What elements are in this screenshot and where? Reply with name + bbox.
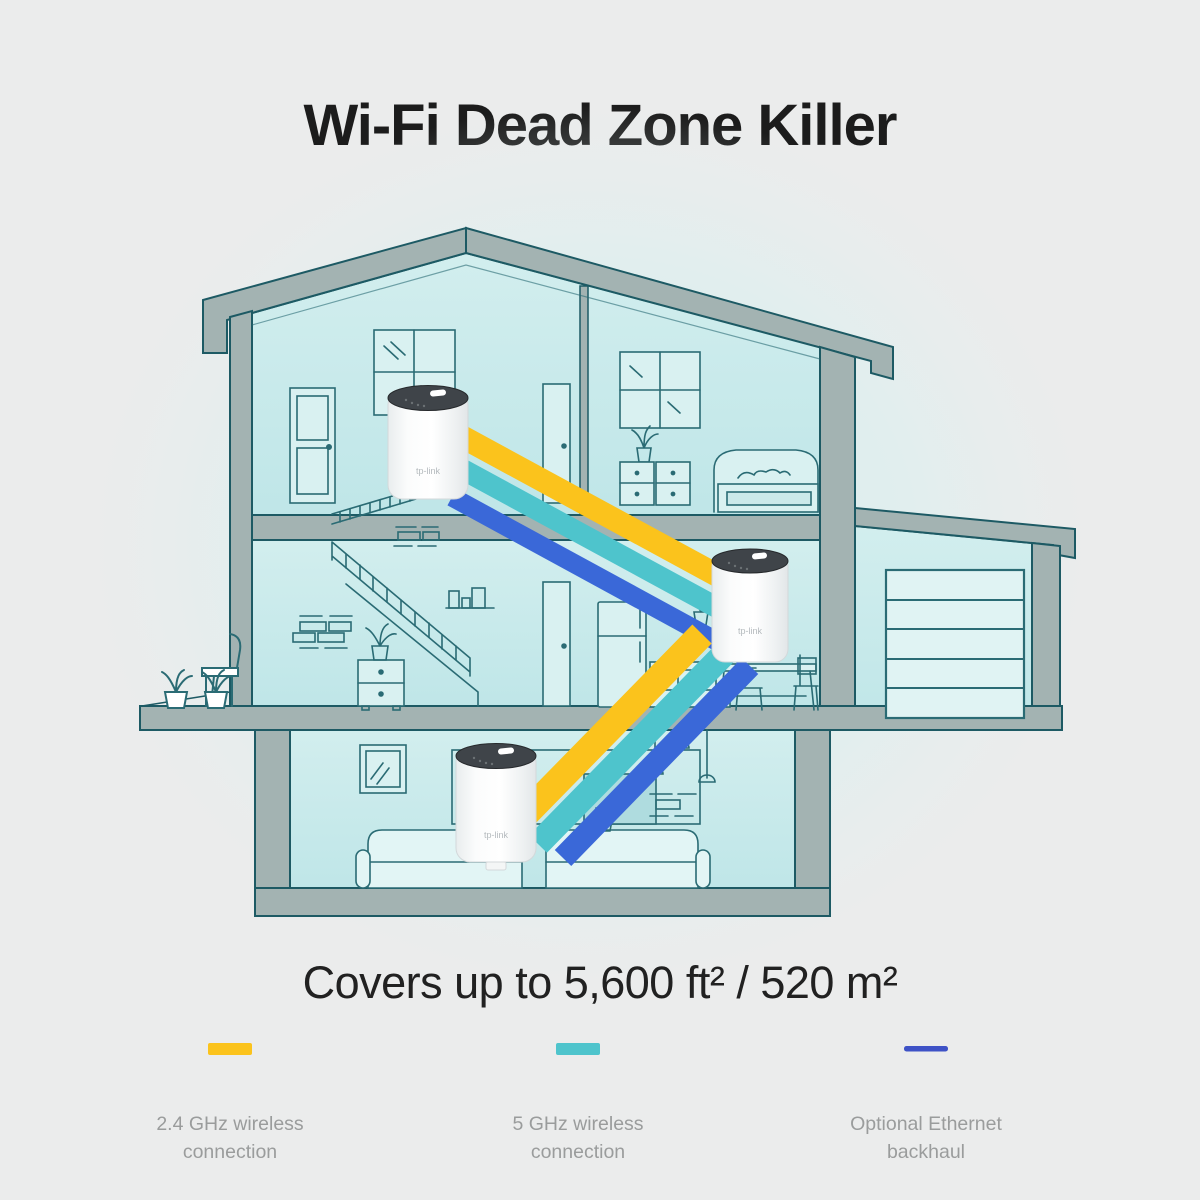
legend-swatch-5ghz xyxy=(555,1042,601,1056)
legend-swatch-24ghz xyxy=(207,1042,253,1056)
garage-door xyxy=(886,570,1024,718)
legend-label: 2.4 GHz wireless connection xyxy=(156,1110,303,1166)
legend-item-5ghz: 5 GHz wireless connection xyxy=(438,1042,718,1166)
legend-swatch-ethernet xyxy=(903,1042,949,1056)
legend-label: Optional Ethernet backhaul xyxy=(850,1110,1002,1166)
page: Wi-Fi Dead Zone Killer xyxy=(0,0,1200,1200)
wall-mirror xyxy=(360,745,406,793)
house-illustration: tp-link tp-link tp-link xyxy=(0,0,1200,1200)
tp-link-logo: tp-link xyxy=(738,626,763,636)
potted-plant-icon xyxy=(205,692,227,708)
garage xyxy=(886,570,1024,718)
deco-unit-attic: tp-link xyxy=(388,386,468,500)
coverage-text: Covers up to 5,600 ft² / 520 m² xyxy=(0,957,1200,1009)
legend-item-24ghz: 2.4 GHz wireless connection xyxy=(90,1042,370,1166)
potted-plant-icon xyxy=(165,692,187,708)
deco-unit-kitchen: tp-link xyxy=(712,549,788,662)
tp-link-logo: tp-link xyxy=(416,466,441,476)
deco-unit-living-room: tp-link xyxy=(456,744,536,871)
legend-label: 5 GHz wireless connection xyxy=(512,1110,643,1166)
legend-item-ethernet: Optional Ethernet backhaul xyxy=(786,1042,1066,1166)
tp-link-logo: tp-link xyxy=(484,830,509,840)
